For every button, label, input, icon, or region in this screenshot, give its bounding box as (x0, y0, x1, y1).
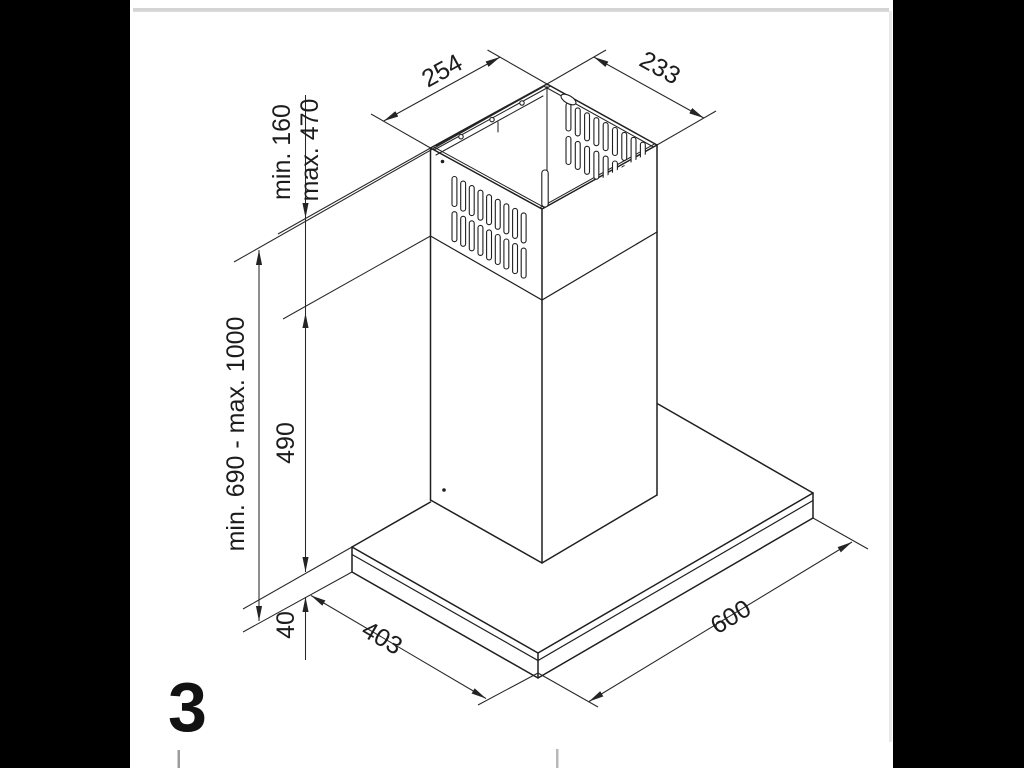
right-black-bar (893, 0, 1024, 768)
dim-label-40: 40 (272, 611, 300, 639)
bottom-tick-right (556, 749, 559, 768)
bracket-hole (520, 101, 524, 105)
inner-corner-tab (542, 170, 548, 207)
page: 254 233 min. 160 max. 470 min. 690 - max… (0, 0, 1024, 768)
dim-label-total-height: min. 690 - max. 1000 (222, 317, 250, 552)
dim-label-max-470: max. 470 (296, 99, 324, 202)
bracket-hole (459, 135, 463, 139)
right-faint-rule (889, 11, 892, 742)
dim-label-min-160: min. 160 (268, 104, 296, 200)
bottom-tick-left (178, 750, 181, 768)
figure-number: 3 (168, 668, 207, 746)
screw-hole-lower (442, 488, 446, 492)
installation-diagram: 254 233 min. 160 max. 470 min. 690 - max… (0, 0, 1024, 768)
top-rule (133, 8, 889, 12)
bracket-hole (490, 117, 494, 121)
left-black-bar (0, 0, 130, 768)
screw-hole-upper (441, 160, 445, 164)
dim-label-490: 490 (272, 422, 300, 464)
